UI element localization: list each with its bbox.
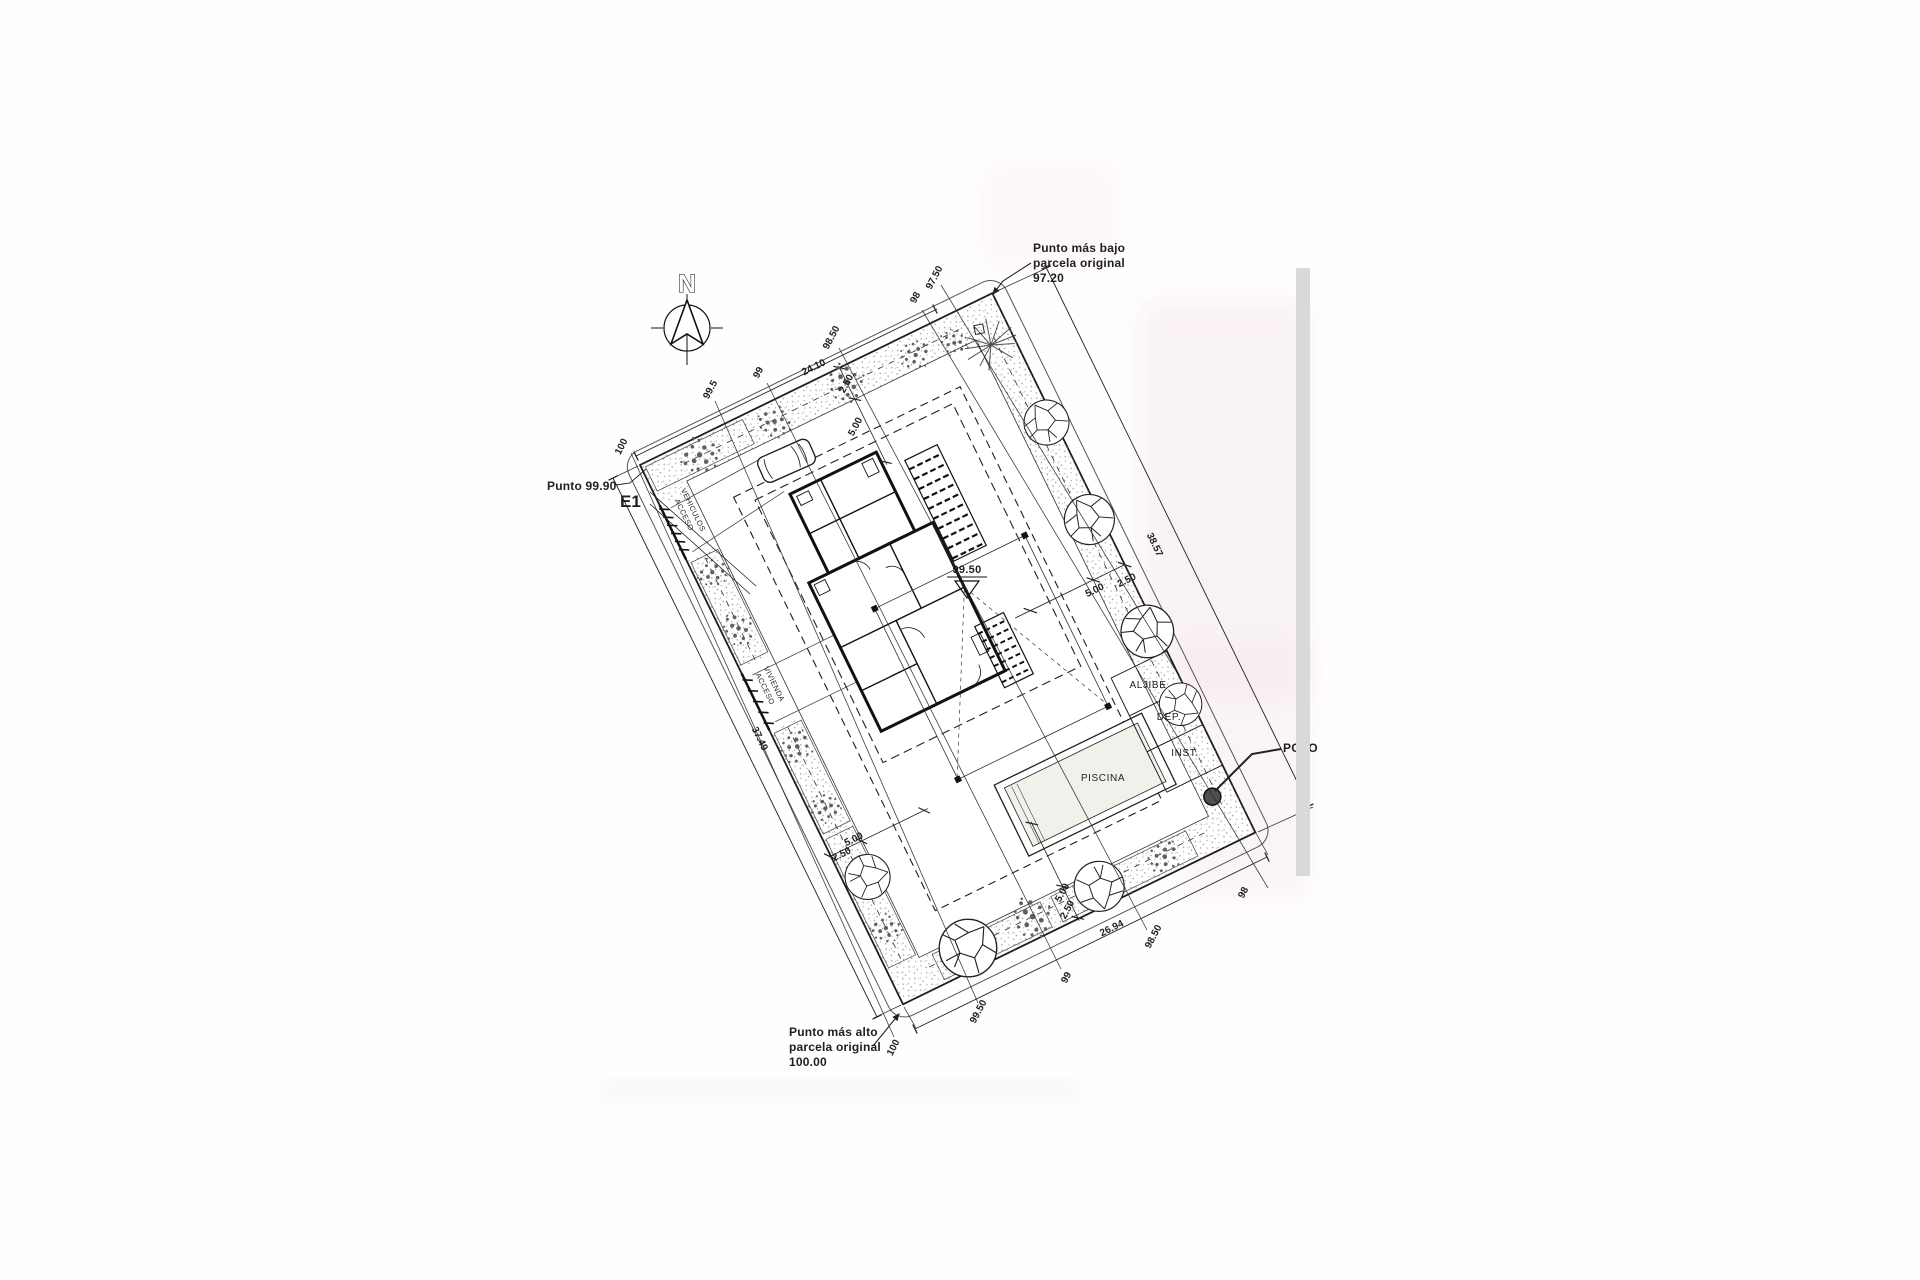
floor-level-value: 99.50 bbox=[952, 564, 981, 576]
dim-left-edge: 37.49 bbox=[749, 725, 770, 753]
contour-bottom-99: 99 bbox=[1059, 970, 1074, 985]
contour-bottom-100: 100 bbox=[885, 1037, 903, 1057]
dep-label: DEP. bbox=[1157, 712, 1181, 723]
scan-edge-band bbox=[1296, 268, 1310, 876]
highest-point-value: 100.00 bbox=[789, 1055, 827, 1069]
spot-level-label: Punto 99.90 bbox=[547, 479, 617, 493]
contour-top-99-5: 99.5 bbox=[701, 378, 720, 401]
lowest-point-line1: Punto más bajo bbox=[1033, 241, 1125, 255]
north-letter: N bbox=[678, 270, 696, 298]
contour-bottom-98-50: 98.50 bbox=[1143, 923, 1165, 951]
cistern-label: ALJIBE bbox=[1130, 680, 1167, 691]
inst-label: INST. bbox=[1171, 748, 1198, 759]
contour-top-98: 98 bbox=[908, 290, 923, 305]
highest-point-line2: parcela original bbox=[789, 1040, 881, 1054]
highest-point-line1: Punto más alto bbox=[789, 1025, 878, 1039]
dim-bottom-edge: 26.94 bbox=[1098, 918, 1126, 939]
site-plan-drawing: N 99.50 Punto más bajo parcela original … bbox=[0, 0, 1920, 1280]
north-arrow: N bbox=[651, 270, 723, 365]
section-mark-label: E1 bbox=[620, 492, 641, 511]
contour-top-99: 99 bbox=[751, 365, 766, 380]
site-plan-page: N 99.50 Punto más bajo parcela original … bbox=[0, 0, 1920, 1280]
contour-top-98-50: 98.50 bbox=[821, 324, 843, 352]
lowest-point-value: 97.20 bbox=[1033, 271, 1064, 285]
pool-label: PISCINA bbox=[1081, 773, 1125, 784]
contour-top-100: 100 bbox=[613, 436, 631, 456]
lowest-point-line2: parcela original bbox=[1033, 256, 1125, 270]
